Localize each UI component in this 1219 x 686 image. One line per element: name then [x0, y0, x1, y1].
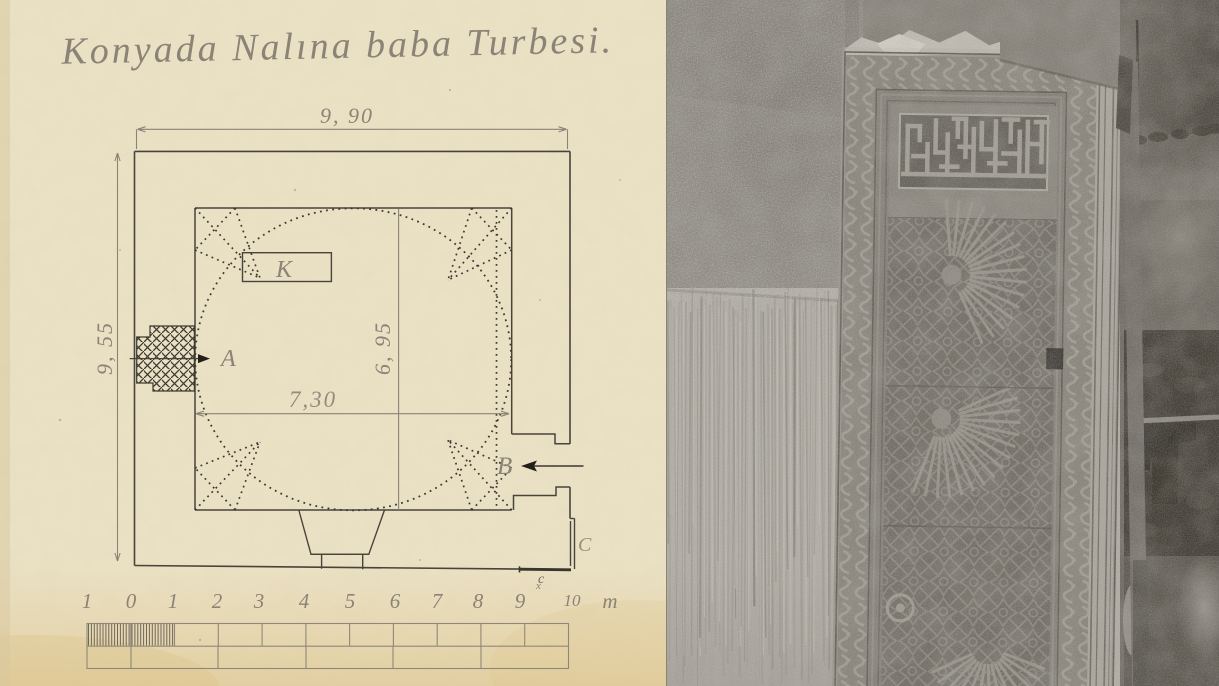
- svg-text:m: m: [602, 589, 617, 613]
- svg-text:B: B: [497, 453, 512, 480]
- svg-text:8: 8: [473, 589, 484, 613]
- svg-text:10: 10: [564, 591, 582, 610]
- svg-text:9, 55: 9, 55: [92, 321, 117, 375]
- svg-text:7: 7: [432, 589, 444, 613]
- svg-text:3: 3: [253, 589, 265, 613]
- svg-text:0: 0: [126, 589, 137, 613]
- svg-text:1: 1: [168, 589, 179, 613]
- svg-text:6: 6: [390, 589, 401, 613]
- svg-text:4: 4: [299, 589, 310, 613]
- svg-text:A: A: [219, 346, 236, 372]
- svg-text:9, 90: 9, 90: [320, 103, 374, 128]
- svg-text:K: K: [275, 257, 294, 283]
- svg-text:C: C: [578, 534, 592, 556]
- svg-text:x: x: [535, 580, 541, 592]
- svg-text:1: 1: [82, 589, 93, 613]
- svg-text:9: 9: [515, 589, 526, 613]
- svg-text:2: 2: [212, 589, 223, 613]
- svg-text:7,30: 7,30: [289, 387, 337, 412]
- svg-text:6, 95: 6, 95: [370, 321, 395, 375]
- svg-text:5: 5: [345, 589, 356, 613]
